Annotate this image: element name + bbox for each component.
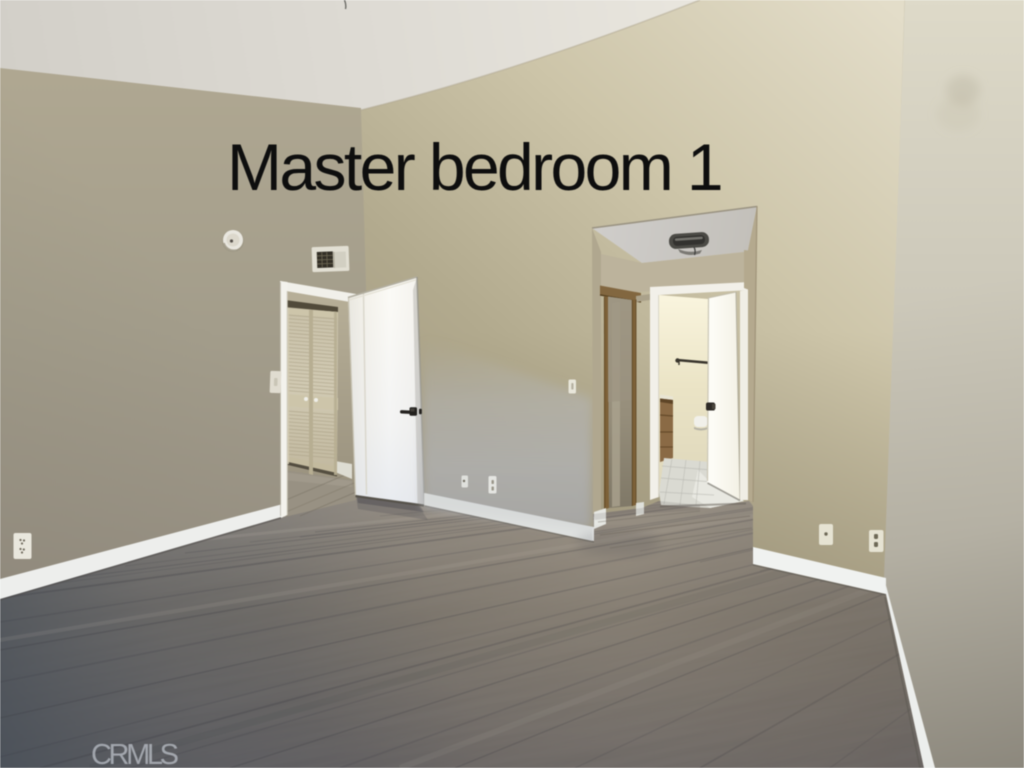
svg-text:CRMLS: CRMLS — [91, 739, 179, 768]
svg-text:Master bedroom 1: Master bedroom 1 — [227, 130, 721, 204]
